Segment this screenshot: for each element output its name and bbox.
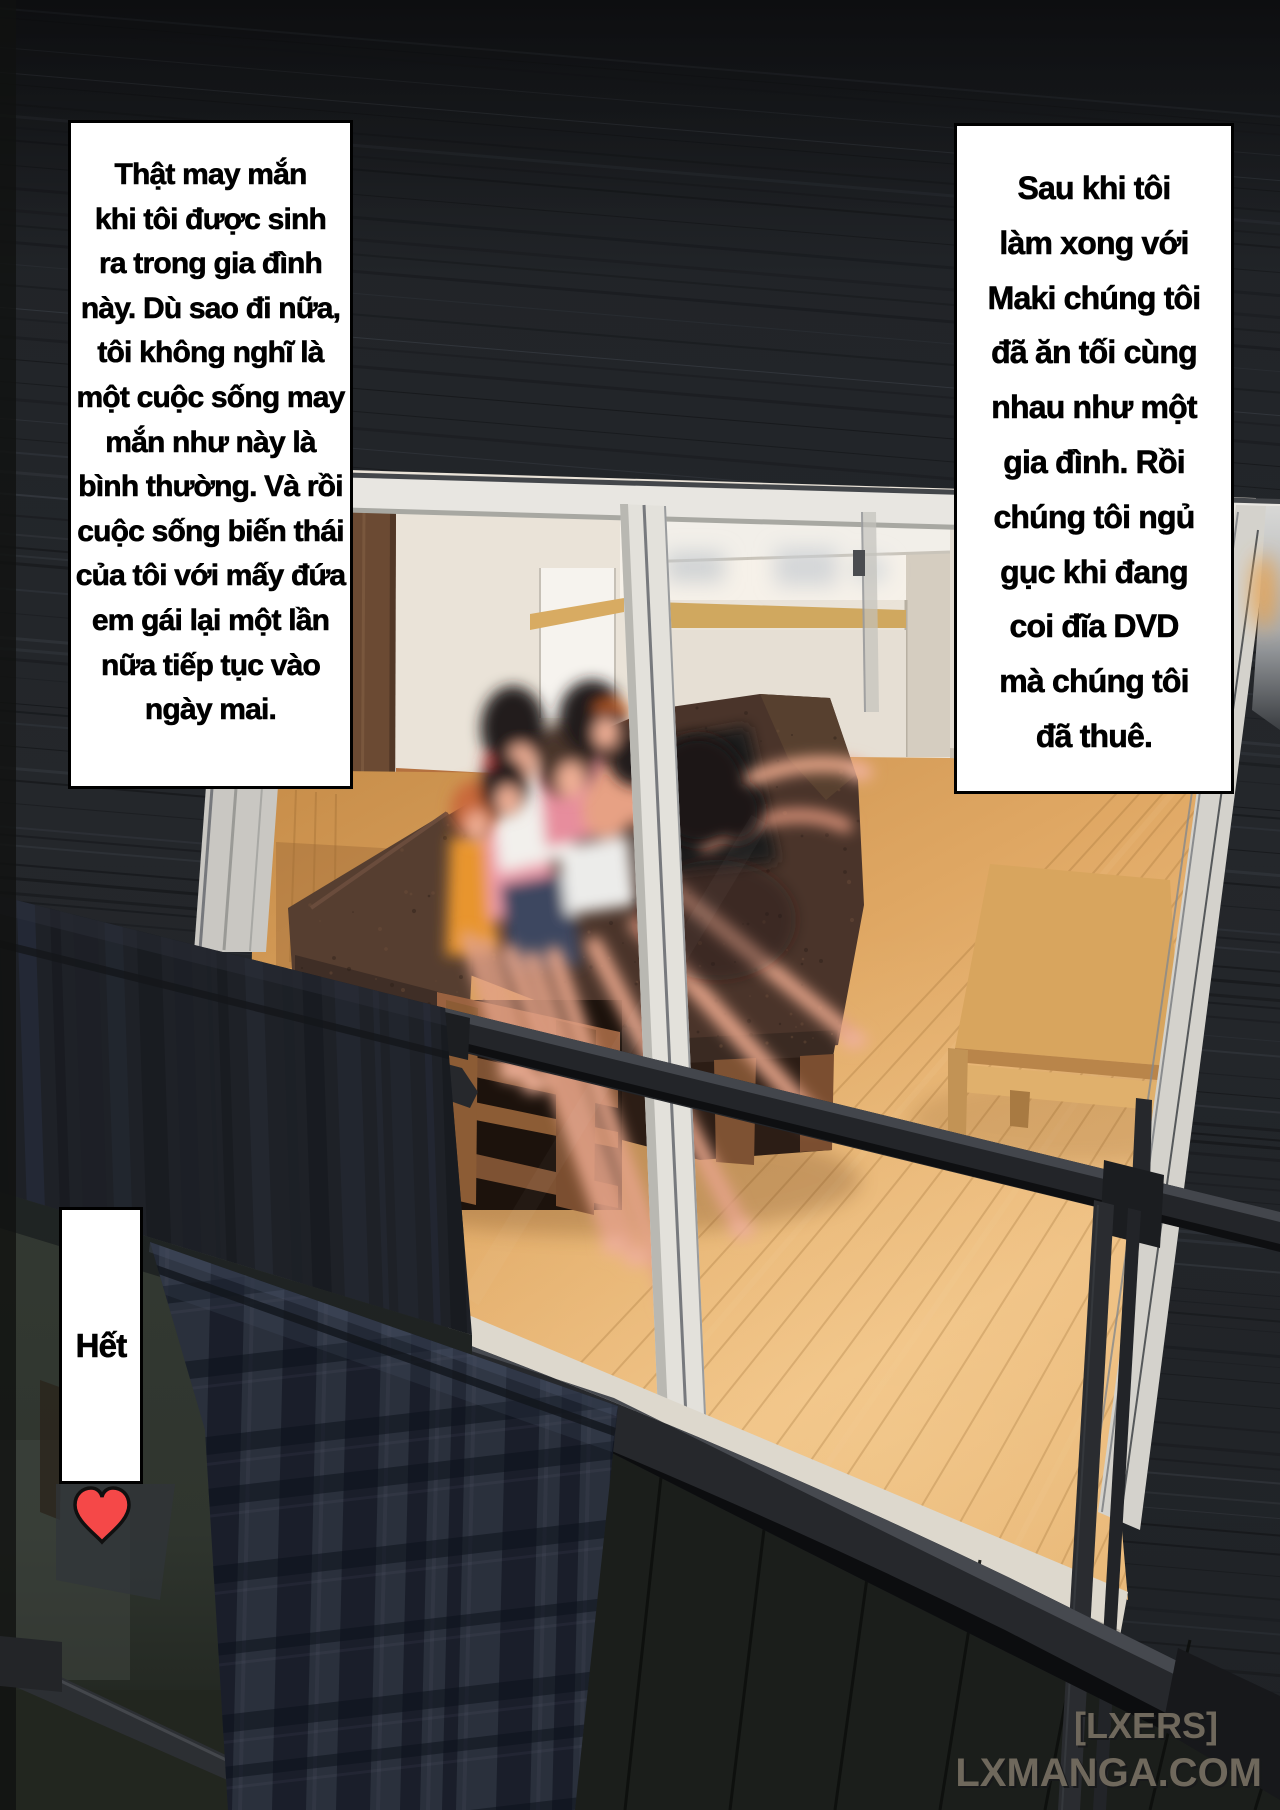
svg-text:[LXERS]: [LXERS] xyxy=(1074,1705,1218,1746)
svg-text:LXMANGA.COM: LXMANGA.COM xyxy=(955,1751,1262,1795)
